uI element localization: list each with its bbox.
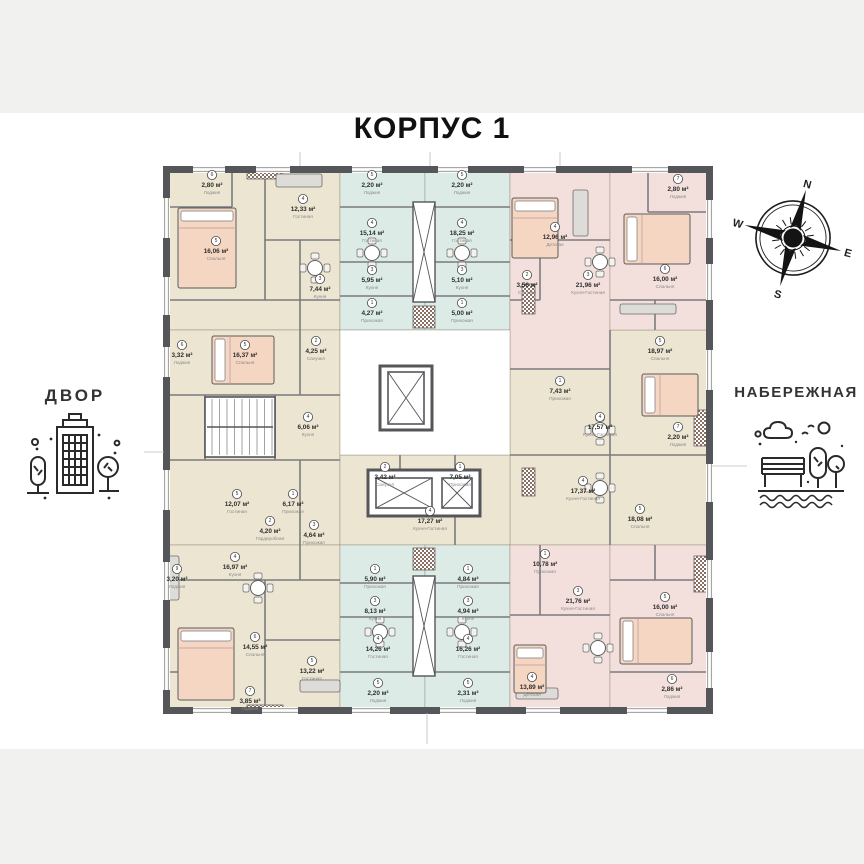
room-number: 3 bbox=[371, 267, 374, 273]
room-name: Кухня bbox=[302, 432, 315, 437]
room-number: 3 bbox=[319, 276, 322, 282]
room-name: Кухня-Гостиная bbox=[561, 606, 595, 611]
room-name: Спальня bbox=[656, 284, 675, 289]
room-name: Кухня bbox=[229, 572, 242, 577]
bed-pillow bbox=[517, 648, 543, 658]
room-area: 15,14 м² bbox=[360, 230, 385, 237]
room-area: 12,33 м² bbox=[291, 206, 316, 213]
table bbox=[591, 641, 606, 656]
room-number: 4 bbox=[307, 414, 310, 420]
room-area: 18,25 м² bbox=[450, 230, 475, 237]
room-name: Гостиная bbox=[458, 654, 478, 659]
room-name: Спальня bbox=[246, 652, 265, 657]
room-area: 4,20 м² bbox=[259, 528, 280, 535]
room-number: 2 bbox=[269, 518, 272, 524]
room-number: 3 bbox=[461, 267, 464, 273]
room-area: 16,00 м² bbox=[653, 604, 678, 611]
room-number: 6 bbox=[181, 342, 184, 348]
room-number: 5 bbox=[461, 172, 464, 178]
room-area: 2,20 м² bbox=[451, 182, 472, 189]
room-number: 7 bbox=[249, 688, 252, 694]
room-area: 3,20 м² bbox=[166, 576, 187, 583]
room-number: 4 bbox=[554, 224, 557, 230]
room-name: Кухня bbox=[456, 285, 469, 290]
room-number: 2 bbox=[384, 464, 387, 470]
room-number: 1 bbox=[544, 551, 547, 557]
chair bbox=[607, 644, 613, 652]
room-area: 6,17 м² bbox=[282, 501, 303, 508]
room-area: 16,00 м² bbox=[653, 276, 678, 283]
room-number: 1 bbox=[559, 378, 562, 384]
room-area: 4,64 м² bbox=[303, 532, 324, 539]
compass-icon: N E S W bbox=[716, 163, 864, 317]
room-name: Лоджия bbox=[204, 190, 221, 195]
table bbox=[365, 246, 380, 261]
compass-ray bbox=[803, 247, 810, 251]
table bbox=[308, 261, 323, 276]
chair bbox=[254, 597, 262, 603]
room-name: Гостиная bbox=[302, 676, 322, 681]
room-number: 5 bbox=[371, 172, 374, 178]
room-area: 5,00 м² bbox=[451, 310, 472, 317]
room-area: 21,76 м² bbox=[566, 598, 591, 605]
room-area: 3,56 м² bbox=[516, 282, 537, 289]
room-number: 4 bbox=[377, 636, 380, 642]
window-gap bbox=[262, 707, 298, 714]
room-name: Лоджия bbox=[664, 694, 681, 699]
room-name: Кухня bbox=[314, 294, 327, 299]
room-area: 3,42 м² bbox=[374, 474, 395, 481]
chair bbox=[583, 644, 589, 652]
room-area: 3,32 м² bbox=[171, 352, 192, 359]
table bbox=[593, 255, 608, 270]
room-number: 4 bbox=[234, 554, 237, 560]
room-area: 18,08 м² bbox=[628, 516, 653, 523]
room-name: Кухня-Гостиная bbox=[413, 526, 447, 531]
room-name: Лоджия bbox=[174, 360, 191, 365]
room-name: Лоджия bbox=[460, 698, 477, 703]
room-number: 1 bbox=[461, 300, 464, 306]
room-area: 5,10 м² bbox=[451, 277, 472, 284]
chair bbox=[609, 484, 615, 492]
room-number: 5 bbox=[215, 238, 218, 244]
room-area: 7,05 м² bbox=[449, 474, 470, 481]
room-name: Детская bbox=[546, 242, 564, 247]
room-area: 16,26 м² bbox=[456, 646, 481, 653]
room-name: Спальня bbox=[656, 612, 675, 617]
chair bbox=[585, 258, 591, 266]
room-name: Кухня-Гостиная bbox=[566, 496, 600, 501]
room-name: Гостиная bbox=[227, 509, 247, 514]
room-name: Прихожая bbox=[449, 482, 471, 487]
room-number: 5 bbox=[639, 506, 642, 512]
room-area: 18,97 м² bbox=[648, 348, 673, 355]
floor-plan-scene: 62,80 м²Лоджия516,06 м²Спальня412,33 м²Г… bbox=[0, 0, 864, 864]
room-area: 3,85 м² bbox=[239, 698, 260, 705]
chair bbox=[447, 628, 453, 636]
room-area: 4,84 м² bbox=[457, 576, 478, 583]
sofa bbox=[573, 190, 588, 236]
room-number: 6 bbox=[211, 172, 214, 178]
room-number: 7 bbox=[677, 176, 680, 182]
room-name: Лоджия bbox=[454, 190, 471, 195]
chair bbox=[389, 628, 395, 636]
window-gap bbox=[526, 707, 560, 714]
bed-pillow bbox=[181, 211, 233, 221]
room-area: 4,25 м² bbox=[305, 348, 326, 355]
room-name: Прихожая bbox=[303, 540, 325, 545]
sofa bbox=[300, 680, 340, 692]
chair bbox=[594, 633, 602, 639]
room-area: 6,06 м² bbox=[297, 424, 318, 431]
chair bbox=[365, 628, 371, 636]
room-area: 16,37 м² bbox=[233, 352, 258, 359]
chair bbox=[357, 249, 363, 257]
room-number: 4 bbox=[531, 674, 534, 680]
room-area: 2,20 м² bbox=[367, 690, 388, 697]
window-gap bbox=[163, 470, 170, 510]
chair bbox=[471, 628, 477, 636]
room-area: 2,86 м² bbox=[661, 686, 682, 693]
compass-ray bbox=[805, 226, 811, 232]
room-number: 5 bbox=[311, 658, 314, 664]
room-area: 10,78 м² bbox=[533, 561, 558, 568]
room-number: 9 bbox=[176, 566, 179, 572]
room-number: 1 bbox=[292, 491, 295, 497]
room-name: Кухня-Гостиная bbox=[583, 432, 617, 437]
compass-ray bbox=[776, 225, 783, 229]
room-number: 5 bbox=[659, 338, 662, 344]
room-name: Кухня bbox=[369, 616, 382, 621]
room-name: Спальня bbox=[631, 524, 650, 529]
chair bbox=[596, 473, 604, 479]
window-gap bbox=[706, 652, 713, 688]
chair bbox=[267, 584, 273, 592]
room-name: Прихожая bbox=[534, 569, 556, 574]
room-number: 3 bbox=[467, 598, 470, 604]
room-number: 3 bbox=[374, 598, 377, 604]
room-area: 17,37 м² bbox=[571, 488, 596, 495]
room-name: Кухня bbox=[462, 616, 475, 621]
bed-pillow bbox=[627, 217, 637, 261]
room-number: 4 bbox=[429, 508, 432, 514]
chair bbox=[324, 264, 330, 272]
room-number: 1 bbox=[374, 566, 377, 572]
room-number: 5 bbox=[377, 680, 380, 686]
room-number: 4 bbox=[461, 220, 464, 226]
loggia-grate bbox=[522, 468, 535, 496]
room-area: 8,13 м² bbox=[364, 608, 385, 615]
room-area: 2,31 м² bbox=[457, 690, 478, 697]
room-name: Прихожая bbox=[282, 509, 304, 514]
window-gap bbox=[440, 707, 476, 714]
window-gap bbox=[352, 166, 382, 173]
window-gap bbox=[193, 707, 231, 714]
table bbox=[455, 246, 470, 261]
room-area: 5,90 м² bbox=[364, 576, 385, 583]
window-gap bbox=[632, 166, 668, 173]
room-name: Гардеробная bbox=[256, 536, 285, 541]
compass-w: W bbox=[731, 217, 745, 231]
room-name: Санузел bbox=[307, 356, 326, 361]
bed-pillow bbox=[181, 631, 231, 641]
bed-pillow bbox=[645, 377, 655, 413]
chair bbox=[471, 249, 477, 257]
courtyard-building-icon bbox=[27, 414, 119, 499]
chair bbox=[254, 573, 262, 579]
bed-pillow bbox=[515, 201, 555, 211]
room-area: 2,20 м² bbox=[667, 434, 688, 441]
room-name: Гостиная bbox=[362, 238, 382, 243]
window-gap bbox=[706, 200, 713, 238]
room-name: Спальня bbox=[651, 356, 670, 361]
room-name: Лоджия bbox=[670, 194, 687, 199]
room-area: 2,20 м² bbox=[361, 182, 382, 189]
window-gap bbox=[706, 464, 713, 502]
room-number: 1 bbox=[371, 300, 374, 306]
room-area: 7,43 м² bbox=[549, 388, 570, 395]
room-area: 13,22 м² bbox=[300, 668, 325, 675]
room-number: 3 bbox=[577, 588, 580, 594]
sofa bbox=[620, 304, 676, 314]
room-number: 1 bbox=[459, 464, 462, 470]
room-area: 2,80 м² bbox=[201, 182, 222, 189]
chair bbox=[594, 657, 602, 663]
room-name: Лоджия bbox=[364, 190, 381, 195]
loggia-grate bbox=[694, 556, 708, 592]
room-area: 12,07 м² bbox=[225, 501, 250, 508]
vent-grate bbox=[413, 306, 435, 328]
chair bbox=[300, 264, 306, 272]
chair bbox=[596, 439, 604, 445]
window-gap bbox=[352, 707, 390, 714]
window-gap bbox=[163, 648, 170, 690]
room-name: Детская bbox=[523, 692, 541, 697]
room-area: 14,26 м² bbox=[366, 646, 391, 653]
room-area: 13,89 м² bbox=[520, 684, 545, 691]
room-number: 4 bbox=[582, 478, 585, 484]
room-number: 5 bbox=[467, 680, 470, 686]
bed-pillow bbox=[215, 339, 225, 381]
window-gap bbox=[163, 277, 170, 315]
window-gap bbox=[706, 264, 713, 300]
chair bbox=[243, 584, 249, 592]
room-name: Кухня bbox=[366, 285, 379, 290]
compass-s: S bbox=[773, 288, 783, 301]
sofa bbox=[276, 174, 322, 187]
room-area: 16,06 м² bbox=[204, 248, 229, 255]
window-gap bbox=[163, 347, 170, 377]
room-number: 6 bbox=[671, 676, 674, 682]
room-number: 5 bbox=[244, 342, 247, 348]
room-name: Прихожая bbox=[549, 396, 571, 401]
room-name: Кухня-Гостиная bbox=[571, 290, 605, 295]
room-number: 4 bbox=[467, 636, 470, 642]
room-area: 5,95 м² bbox=[361, 277, 382, 284]
room-area: 14,55 м² bbox=[243, 644, 268, 651]
room-name: Спальня bbox=[207, 256, 226, 261]
room-number: 4 bbox=[371, 220, 374, 226]
room-number: 1 bbox=[467, 566, 470, 572]
chair bbox=[381, 249, 387, 257]
room-number: 5 bbox=[236, 491, 239, 497]
room-area: 4,94 м² bbox=[457, 608, 478, 615]
room-area: 4,27 м² bbox=[361, 310, 382, 317]
room-number: 6 bbox=[254, 634, 257, 640]
compass-e: E bbox=[843, 247, 853, 260]
room-number: 5 bbox=[664, 594, 667, 600]
embankment-icon bbox=[755, 422, 844, 508]
room-number: 7 bbox=[677, 424, 680, 430]
compass-ray bbox=[781, 220, 787, 226]
room-name: Гостиная bbox=[452, 238, 472, 243]
window-gap bbox=[706, 560, 713, 598]
room-name: Прихожая bbox=[364, 584, 386, 589]
room-name: Лоджия bbox=[670, 442, 687, 447]
floor-plan: 62,80 м²Лоджия516,06 м²Спальня412,33 м²Г… bbox=[144, 152, 747, 744]
room-name: Гостиная bbox=[293, 214, 313, 219]
chair bbox=[596, 247, 604, 253]
room-area: 17,57 м² bbox=[588, 424, 613, 431]
room-name: Санузел bbox=[518, 290, 537, 295]
room-name: Прихожая bbox=[361, 318, 383, 323]
room-area: 17,27 м² bbox=[418, 518, 443, 525]
compass-ray bbox=[775, 244, 781, 250]
window-gap bbox=[256, 166, 290, 173]
window-gap bbox=[627, 707, 667, 714]
chair bbox=[311, 253, 319, 259]
compass-n: N bbox=[802, 178, 813, 192]
vent-grate bbox=[413, 548, 435, 570]
room-area: 16,97 м² bbox=[223, 564, 248, 571]
compass-ray bbox=[799, 250, 805, 256]
room-number: 6 bbox=[664, 266, 667, 272]
compass-ray bbox=[802, 221, 806, 228]
window-gap bbox=[524, 166, 556, 173]
room-name: Прихожая bbox=[451, 318, 473, 323]
room-number: 2 bbox=[315, 338, 318, 344]
chair bbox=[596, 271, 604, 277]
room-number: 4 bbox=[302, 196, 305, 202]
compass-ray bbox=[780, 248, 784, 255]
window-gap bbox=[706, 350, 713, 390]
room-number: 4 bbox=[599, 414, 602, 420]
room-name: Спальня bbox=[236, 360, 255, 365]
room-area: 21,96 м² bbox=[576, 282, 601, 289]
room-area: 2,80 м² bbox=[667, 186, 688, 193]
room-number: 3 bbox=[313, 522, 316, 528]
room-name: Гостиная bbox=[368, 654, 388, 659]
room-name: Лоджия bbox=[242, 706, 259, 711]
window-gap bbox=[163, 198, 170, 238]
room-name: Лоджия bbox=[169, 584, 186, 589]
bed-pillow bbox=[623, 621, 633, 661]
room-name: Прихожая bbox=[457, 584, 479, 589]
room-name: Лоджия bbox=[370, 698, 387, 703]
room-number: 3 bbox=[587, 272, 590, 278]
room-area: 7,44 м² bbox=[309, 286, 330, 293]
room-number: 2 bbox=[526, 272, 529, 278]
chair bbox=[609, 258, 615, 266]
chair bbox=[447, 249, 453, 257]
room-area: 12,96 м² bbox=[543, 234, 568, 241]
table bbox=[251, 581, 266, 596]
room-name: Санузел bbox=[376, 482, 395, 487]
